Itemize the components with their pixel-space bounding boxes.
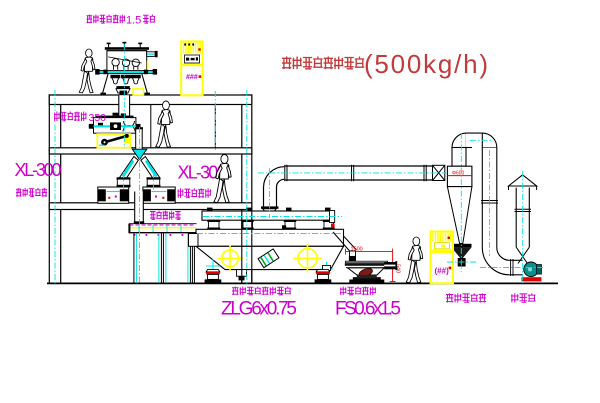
svg-text:350: 350 <box>89 112 107 124</box>
svg-text:XL-300: XL-300 <box>15 160 62 180</box>
svg-text:(##): (##) <box>435 267 450 276</box>
svg-text:Φ600: Φ600 <box>452 171 465 177</box>
svg-text:1.5: 1.5 <box>126 14 141 26</box>
svg-text:(500kg/h): (500kg/h) <box>364 49 488 79</box>
svg-text:###: ### <box>186 74 198 81</box>
svg-text:ZLG6x0.75: ZLG6x0.75 <box>221 299 297 320</box>
svg-text:FS0.6x1.5: FS0.6x1.5 <box>335 299 401 320</box>
